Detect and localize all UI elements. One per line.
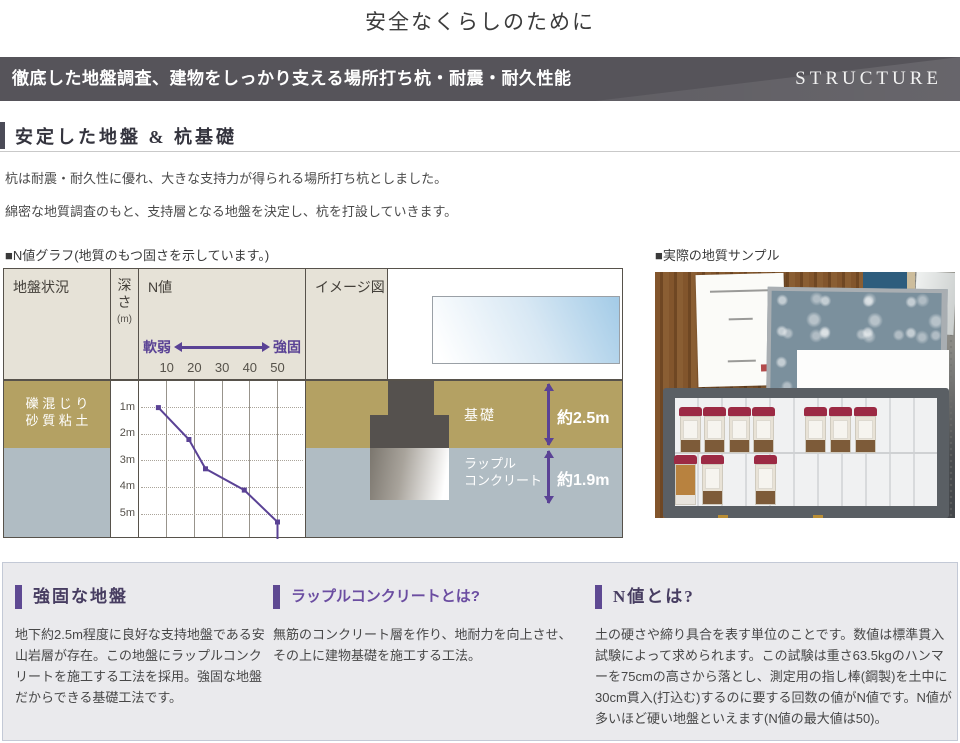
x-tick-label: 30 <box>210 360 234 375</box>
ground-condition-column: 礫 混 じ り 砂 質 粘 土 風化安山岩 <box>4 381 111 537</box>
rubble-label-line-2: コンクリート <box>464 472 542 489</box>
info-heading-rubble-concrete: ラップルコンクリートとは? <box>273 585 575 609</box>
bottle-body <box>805 416 826 453</box>
section-heading-row: 安定した地盤 & 杭基礎 <box>0 121 960 152</box>
bottle-cap <box>754 455 777 464</box>
banner-title: 徹底した地盤調査、建物をしっかり支える場所打ち杭・耐震・耐久性能 <box>12 57 572 101</box>
page-title: 安全なくらしのために <box>0 6 960 36</box>
bottle-body <box>680 416 701 453</box>
sample-bottle <box>702 455 723 505</box>
rubble-label-line-1: ラップル <box>464 455 542 472</box>
sample-bottle <box>805 407 826 453</box>
bottle-label <box>808 420 823 439</box>
photo-sample-tray <box>675 398 937 506</box>
rubble-label: ラップル コンクリート <box>464 455 542 489</box>
bottle-cap <box>829 407 852 416</box>
sample-photo-label: ■実際の地質サンプル <box>655 245 779 264</box>
depth-label: 3m <box>111 454 135 466</box>
bottle-cap <box>674 455 697 464</box>
info-col-solid-ground: 強固な地盤 地下約2.5m程度に良好な支持地盤である安山岩層が存在。この地盤にラ… <box>15 585 269 708</box>
soil-table-body: 礫 混 じ り 砂 質 粘 土 風化安山岩 1m2m3m4m5m 基礎 ラッ <box>4 379 622 537</box>
sample-bottle <box>830 407 851 453</box>
bottle-label <box>707 420 722 439</box>
bottle-body <box>729 416 750 453</box>
scale-firm-label: 強固 <box>273 337 301 357</box>
header-cell-depth: 深 さ (m) <box>111 269 139 379</box>
bottle-cap <box>728 407 751 416</box>
nvalue-line-chart <box>139 381 306 537</box>
bottle-label <box>732 420 747 439</box>
nvalue-polyline <box>139 381 306 539</box>
sample-bottle <box>753 407 774 453</box>
soft-firm-scale: 軟弱 強固 <box>143 337 301 357</box>
geological-sample-photo <box>655 272 955 518</box>
photo-sample-case <box>663 388 949 518</box>
header-cell-nvalue: N値 軟弱 強固 1020304050 <box>139 269 306 379</box>
pile-footing <box>370 415 449 448</box>
header-nvalue-label: N値 <box>148 277 172 297</box>
foundation-label: 基礎 <box>464 405 496 425</box>
info-col-rubble-concrete: ラップルコンクリートとは? 無筋のコンクリート層を作り、地耐力を向上させ、その上… <box>273 585 575 666</box>
case-hinge <box>813 515 823 518</box>
info-body-nvalue: 土の硬さや締り具合を表す単位のことです。数値は標準貫入試験によって求められます。… <box>595 624 953 729</box>
depth-label: 1m <box>111 401 135 413</box>
bottle-label <box>705 468 720 489</box>
image-diagram-area: 基礎 ラップル コンクリート 約2.5m 約1.9m <box>306 381 622 537</box>
document-text-line <box>728 360 756 363</box>
bottle-body <box>830 416 851 453</box>
dim-arrow-lower-icon <box>547 451 550 503</box>
x-tick-label: 20 <box>182 360 206 375</box>
depth-unit: (m) <box>117 311 132 328</box>
x-tick-label: 10 <box>155 360 179 375</box>
bottle-label <box>756 420 771 439</box>
x-tick-row: 1020304050 <box>139 360 305 378</box>
bottle-body <box>675 464 696 505</box>
bottle-body <box>753 416 774 453</box>
info-body-solid-ground: 地下約2.5m程度に良好な支持地盤である安山岩層が存在。この地盤にラップルコンク… <box>15 624 269 708</box>
x-tick-label: 50 <box>266 360 290 375</box>
layer-band-andesite: 風化安山岩 <box>4 448 110 537</box>
header-ground-label: 地盤状況 <box>13 277 69 297</box>
bottle-label <box>858 420 873 439</box>
bottle-cap <box>679 407 702 416</box>
scale-arrow-icon <box>174 341 270 353</box>
info-heading-nvalue: N値とは? <box>595 585 953 609</box>
sample-bottle <box>729 407 750 453</box>
bottle-body <box>704 416 725 453</box>
intro-paragraph-1: 杭は耐震・耐久性に優れ、大きな支持力が得られる場所打ち杭としました。 <box>5 168 705 187</box>
depth-char-1: 深 <box>118 277 132 294</box>
info-col-nvalue: N値とは? 土の硬さや締り具合を表す単位のことです。数値は標準貫入試験によって求… <box>595 585 953 729</box>
depth-char-2: さ <box>118 294 132 311</box>
header-cell-illustration <box>388 269 622 379</box>
depth-scale-column: 1m2m3m4m5m <box>111 381 139 537</box>
intro-text: 杭は耐震・耐久性に優れ、大きな支持力が得られる場所打ち杭としました。 綿密な地質… <box>5 168 705 234</box>
intro-paragraph-2: 綿密な地質調査のもと、支持層となる地盤を決定し、杭を打設していきます。 <box>5 201 705 220</box>
info-heading-solid-ground: 強固な地盤 <box>15 585 269 609</box>
dim-upper-label: 約2.5m <box>557 404 609 428</box>
bottle-cap <box>854 407 877 416</box>
soil-table: 地盤状況 深 さ (m) N値 軟弱 強固 1020304050 イメージ図 <box>3 268 623 538</box>
dim-lower-label: 約1.9m <box>557 466 609 490</box>
layer-label-gravel: 礫 混 じ り 砂 質 粘 土 <box>4 395 110 429</box>
info-panel: 強固な地盤 地下約2.5m程度に良好な支持地盤である安山岩層が存在。この地盤にラ… <box>2 562 958 741</box>
header-cell-image: イメージ図 <box>306 269 388 379</box>
depth-label: 4m <box>111 480 135 492</box>
bottle-cap <box>703 407 726 416</box>
building-illustration <box>432 296 620 364</box>
scale-soft-label: 軟弱 <box>143 337 171 357</box>
x-tick-label: 40 <box>238 360 262 375</box>
page: 安全なくらしのために 徹底した地盤調査、建物をしっかり支える場所打ち杭・耐震・耐… <box>0 0 960 743</box>
depth-label: 2m <box>111 427 135 439</box>
bottle-body <box>755 464 776 505</box>
sample-bottle <box>680 407 701 453</box>
banner-en-label: STRUCTURE <box>795 57 942 101</box>
header-cell-ground: 地盤状況 <box>4 269 111 379</box>
bottle-cap <box>752 407 775 416</box>
structure-banner: 徹底した地盤調査、建物をしっかり支える場所打ち杭・耐震・耐久性能 STRUCTU… <box>0 57 960 101</box>
bottle-label <box>758 468 773 489</box>
sample-bottle <box>704 407 725 453</box>
depth-label: 5m <box>111 507 135 519</box>
bottle-body <box>855 416 876 453</box>
header-image-label: イメージ図 <box>315 277 385 297</box>
dim-arrow-upper-icon <box>547 384 550 445</box>
bottle-label <box>683 420 698 439</box>
info-body-rubble-concrete: 無筋のコンクリート層を作り、地耐力を向上させ、その上に建物基礎を施工する工法。 <box>273 624 575 666</box>
bottle-cap <box>701 455 724 464</box>
section-heading-bar <box>0 122 5 149</box>
bottle-cap <box>804 407 827 416</box>
bottle-body <box>702 464 723 505</box>
document-text-line <box>729 318 753 321</box>
gravel-line-2: 砂 質 粘 土 <box>4 412 110 429</box>
gravel-line-1: 礫 混 じ り <box>4 395 110 412</box>
depth-header-vertical: 深 さ (m) <box>111 277 138 328</box>
rubble-concrete-block <box>370 448 449 500</box>
sample-bottle <box>675 455 696 505</box>
nvalue-graph-label: ■N値グラフ(地質のもつ固さを示しています。) <box>5 245 269 264</box>
pile-column <box>388 381 434 415</box>
sample-bottle <box>855 407 876 453</box>
document-text-line <box>710 289 770 293</box>
sample-bottle <box>755 455 776 505</box>
section-heading: 安定した地盤 & 杭基礎 <box>15 123 237 149</box>
case-hinge <box>718 515 728 518</box>
layer-band-gravel: 礫 混 じ り 砂 質 粘 土 <box>4 381 110 448</box>
bottle-label <box>833 420 848 439</box>
